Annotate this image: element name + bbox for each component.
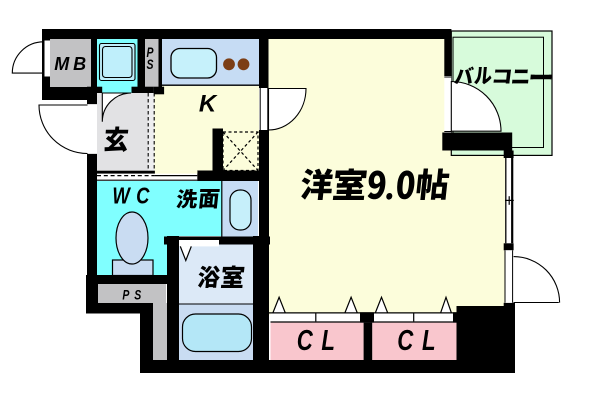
- svg-text:PS: PS: [122, 287, 146, 303]
- svg-text:CL: CL: [297, 325, 344, 356]
- svg-text:MB: MB: [54, 54, 90, 74]
- svg-text:WC: WC: [112, 184, 155, 209]
- svg-text:CL: CL: [397, 325, 444, 356]
- svg-text:S: S: [146, 56, 154, 72]
- svg-text:K: K: [199, 90, 218, 117]
